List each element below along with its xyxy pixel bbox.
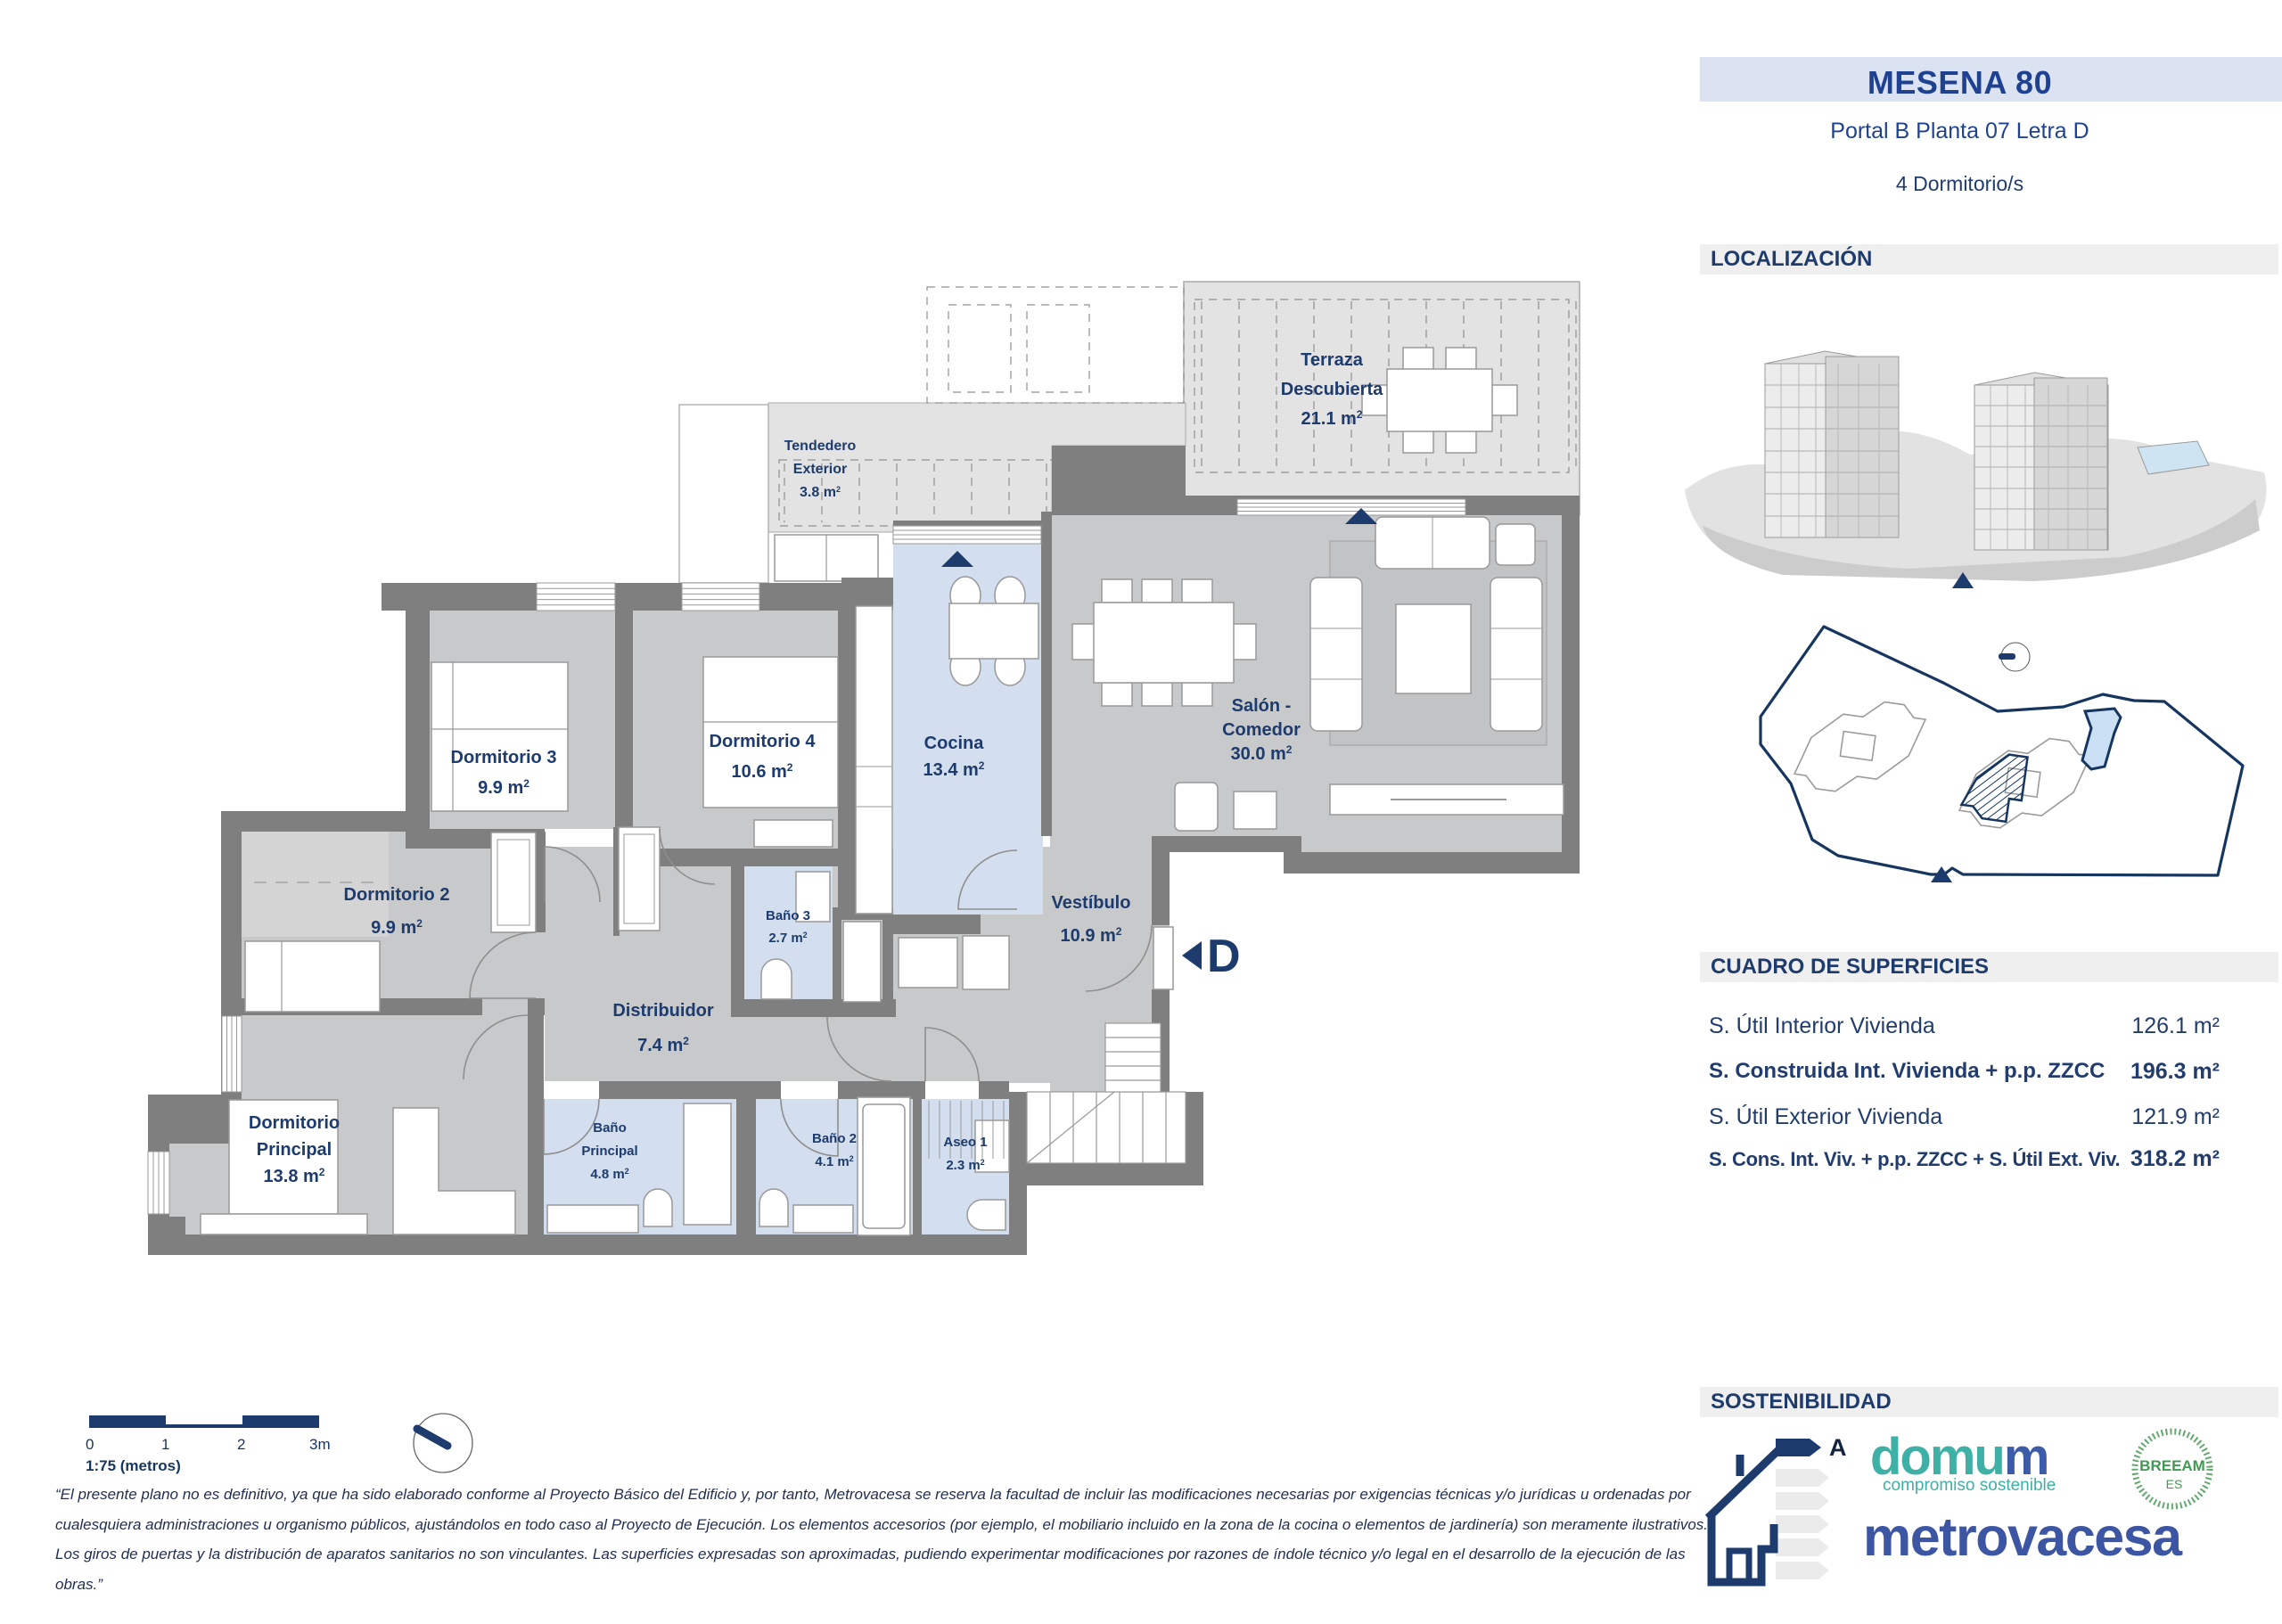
svg-text:1:75 (metros): 1:75 (metros) — [86, 1457, 181, 1474]
svg-text:4.1 m2: 4.1 m2 — [815, 1154, 853, 1169]
svg-text:Baño 2: Baño 2 — [812, 1131, 857, 1146]
svg-text:21.1 m2: 21.1 m2 — [1301, 408, 1363, 429]
svg-text:Distribuidor: Distribuidor — [612, 1001, 714, 1021]
svg-text:Aseo 1: Aseo 1 — [943, 1135, 987, 1150]
svg-text:9.9 m2: 9.9 m2 — [478, 777, 529, 798]
svg-text:metrovacesa: metrovacesa — [1863, 1506, 2183, 1567]
svg-text:7.4 m2: 7.4 m2 — [637, 1035, 689, 1055]
svg-text:2.7 m2: 2.7 m2 — [768, 931, 807, 946]
svg-text:Descubierta: Descubierta — [1281, 380, 1383, 399]
svg-text:3.8 m2: 3.8 m2 — [800, 485, 841, 500]
svg-text:10.9 m2: 10.9 m2 — [1061, 925, 1122, 946]
svg-text:Vestíbulo: Vestíbulo — [1052, 893, 1131, 913]
svg-text:Dormitorio 4: Dormitorio 4 — [710, 732, 817, 751]
svg-text:Dormitorio 3: Dormitorio 3 — [451, 748, 557, 767]
svg-text:Dormitorio 2: Dormitorio 2 — [344, 885, 450, 905]
svg-text:Principal: Principal — [257, 1140, 332, 1160]
svg-text:Dormitorio: Dormitorio — [249, 1113, 340, 1133]
svg-text:Exterior: Exterior — [793, 462, 847, 477]
svg-text:Cocina: Cocina — [924, 734, 985, 753]
svg-text:Salón -: Salón - — [1232, 696, 1292, 716]
svg-text:Tendedero: Tendedero — [784, 439, 857, 454]
svg-text:Baño: Baño — [593, 1120, 627, 1136]
svg-text:Terraza: Terraza — [1301, 350, 1364, 370]
svg-text:ES: ES — [2166, 1477, 2183, 1491]
svg-text:BREEAM: BREEAM — [2139, 1457, 2205, 1474]
svg-text:3m: 3m — [309, 1436, 331, 1453]
svg-text:13.8 m2: 13.8 m2 — [264, 1166, 325, 1186]
svg-text:D: D — [1207, 931, 1241, 982]
svg-text:0: 0 — [86, 1436, 94, 1453]
svg-text:13.4 m2: 13.4 m2 — [923, 759, 985, 780]
svg-text:2: 2 — [237, 1436, 245, 1453]
svg-text:Comedor: Comedor — [1222, 720, 1301, 740]
svg-text:4.8 m2: 4.8 m2 — [590, 1167, 628, 1182]
svg-text:Principal: Principal — [581, 1144, 637, 1159]
svg-text:30.0 m2: 30.0 m2 — [1231, 743, 1293, 764]
svg-text:10.6 m2: 10.6 m2 — [732, 761, 793, 782]
svg-text:1: 1 — [161, 1436, 169, 1453]
svg-text:9.9 m2: 9.9 m2 — [371, 917, 423, 938]
svg-text:Baño 3: Baño 3 — [766, 908, 810, 923]
svg-text:compromiso sostenible: compromiso sostenible — [1883, 1476, 2056, 1495]
svg-text:2.3 m2: 2.3 m2 — [946, 1158, 984, 1173]
svg-text:A: A — [1829, 1434, 1847, 1461]
